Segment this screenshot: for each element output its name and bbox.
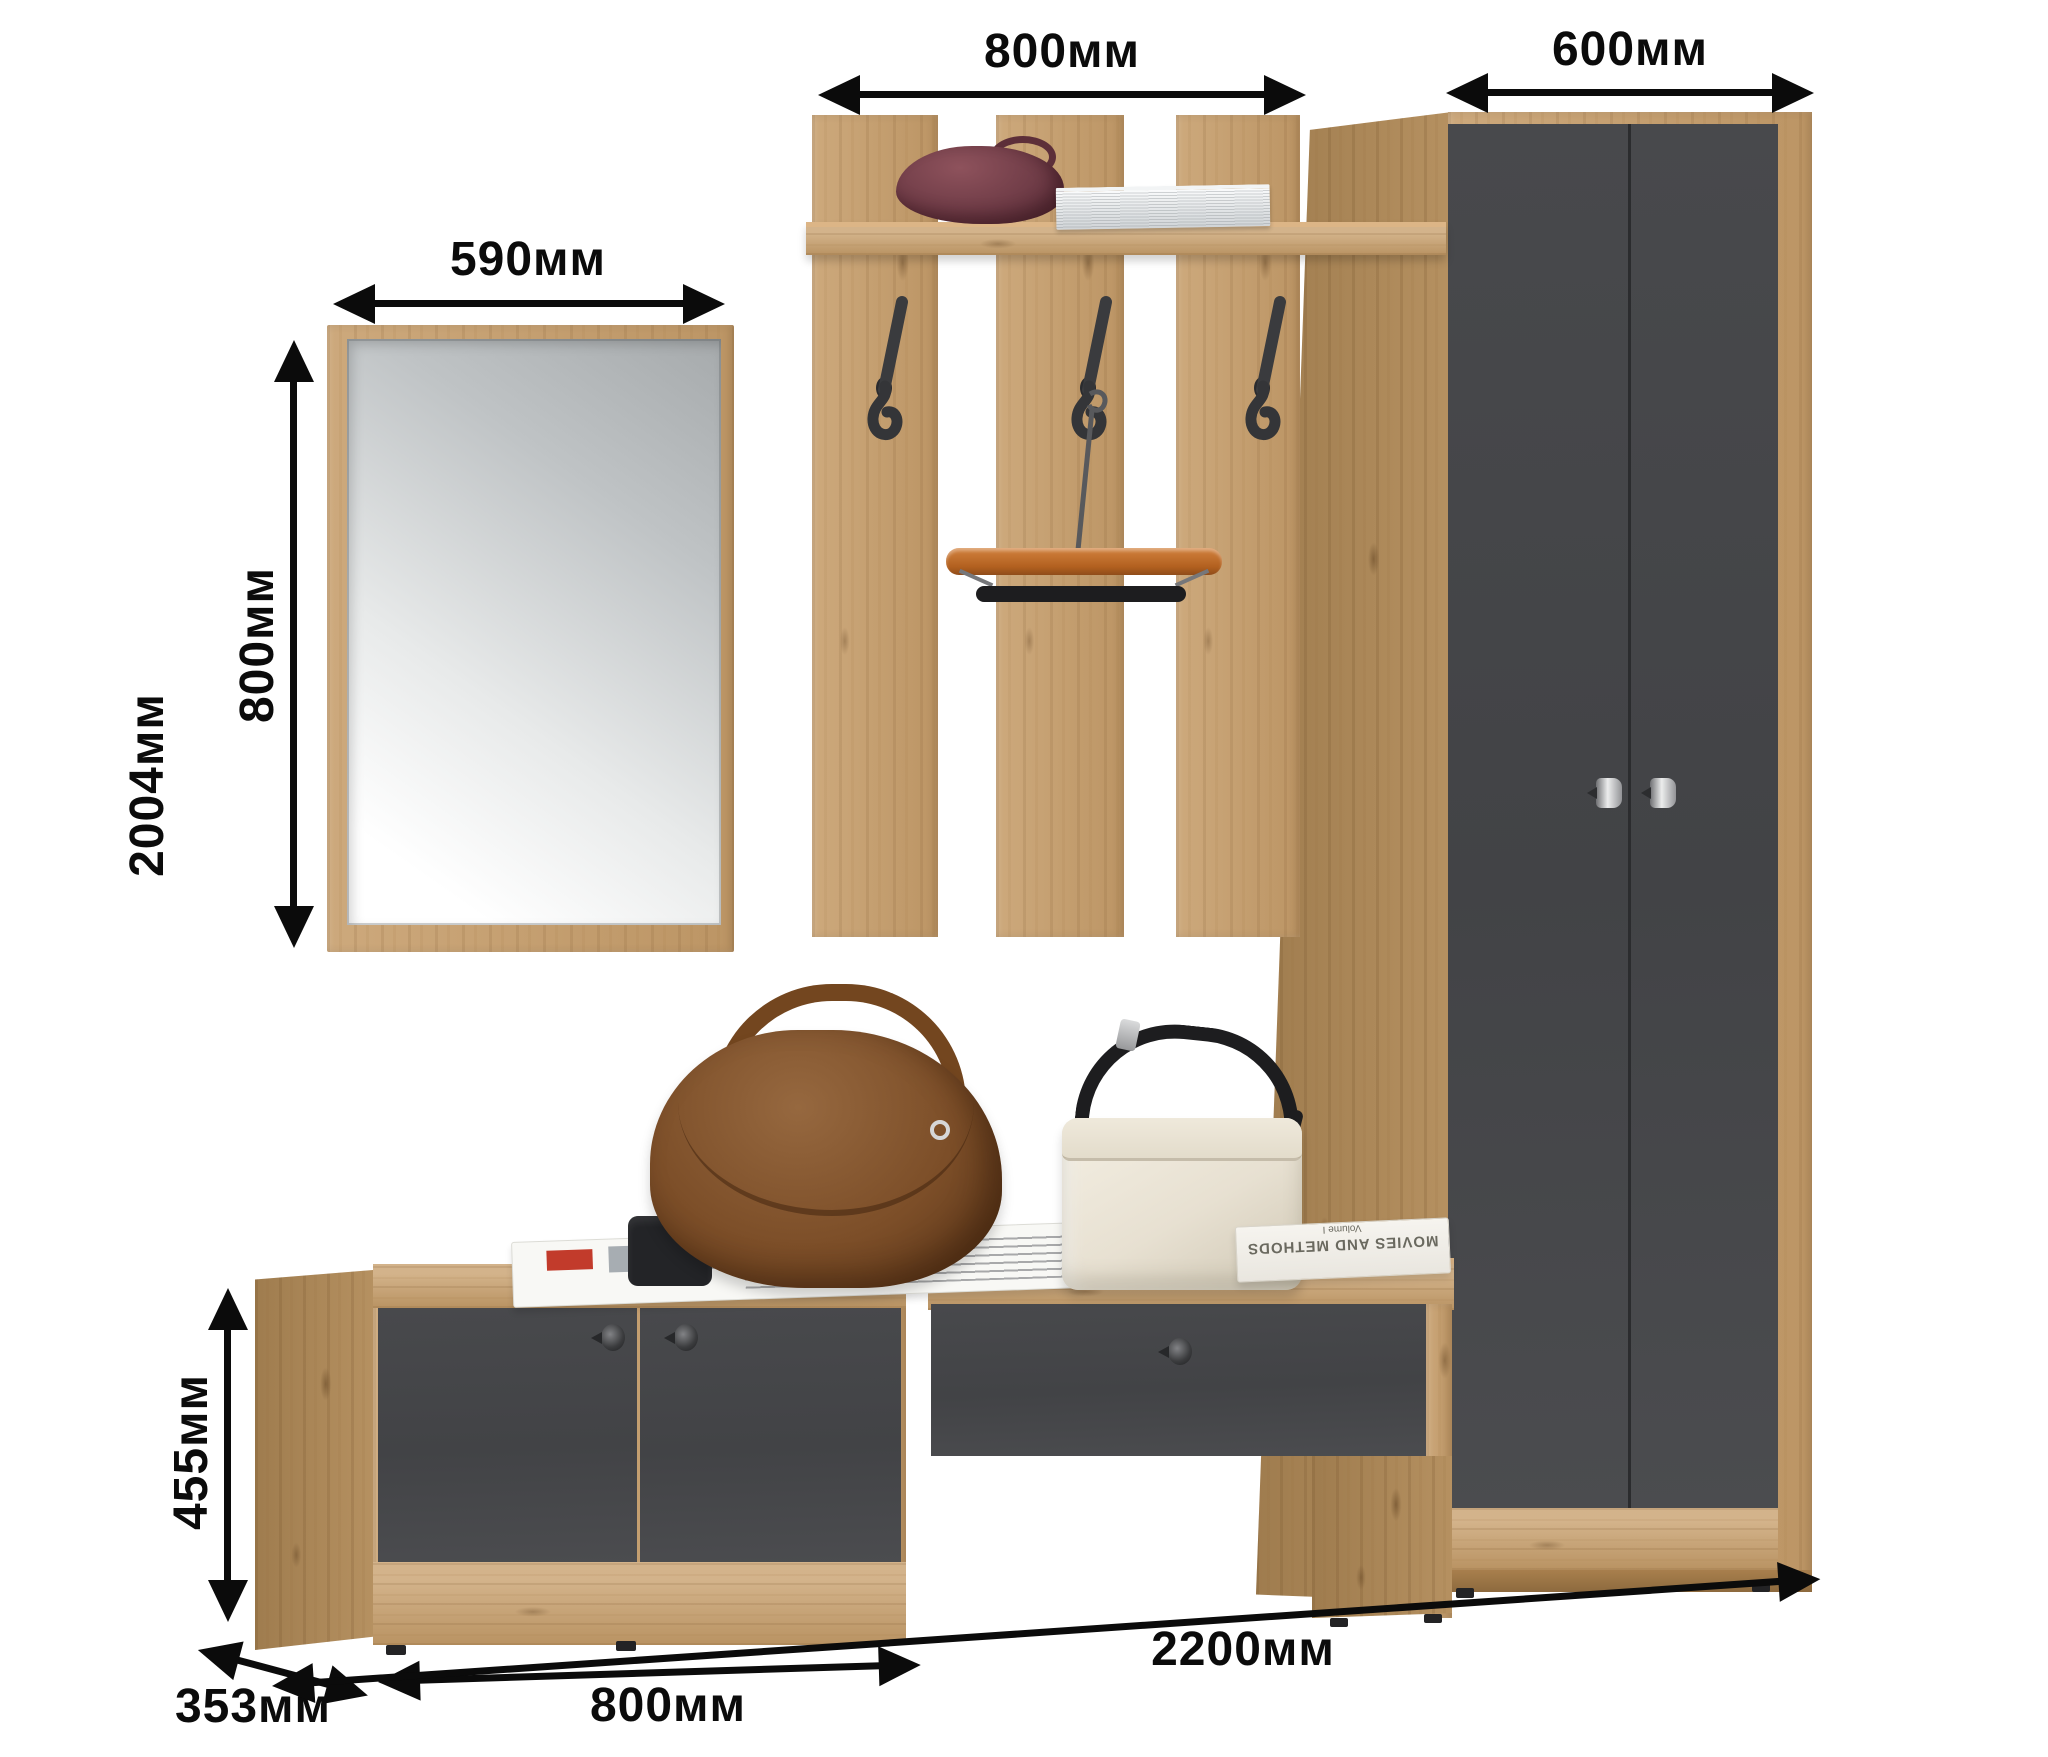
bench-book: MOVIES AND METHODS Volume I	[1235, 1217, 1451, 1282]
shoe-cabinet-knob-left	[601, 1324, 625, 1351]
shoe-cabinet-side	[255, 1270, 373, 1650]
hanger-wood-bar	[946, 548, 1222, 575]
shoe-cabinet-front	[373, 1264, 906, 1645]
dim-label-total-width: 2200мм	[1151, 1626, 1335, 1674]
coat-hook-1	[862, 288, 932, 458]
wardrobe-body	[1448, 112, 1812, 1592]
shelf-book	[1056, 184, 1271, 230]
shoe-cabinet-foot-right	[616, 1641, 636, 1651]
cream-bag-flap	[1062, 1118, 1302, 1161]
bench-book-cover-text: MOVIES AND METHODS Volume I	[1236, 1218, 1449, 1264]
dim-label-total-height: 2004мм	[124, 693, 172, 877]
bench-support-panel	[1312, 1456, 1452, 1618]
dim-label-mirror-width: 590мм	[450, 236, 606, 284]
shoe-cabinet-knob-right	[674, 1324, 698, 1351]
dim-arrow-mirror-height	[290, 380, 297, 908]
dim-arrow-wardrobe-width	[1486, 89, 1774, 96]
dim-label-mirror-height: 800мм	[234, 567, 282, 723]
wardrobe-door-right	[1631, 124, 1778, 1508]
dim-label-panel-width: 800мм	[984, 28, 1140, 76]
hanger-trouser-bar	[976, 586, 1186, 602]
mirror-glass	[347, 339, 721, 925]
dim-label-cabinet-height: 455мм	[168, 1374, 216, 1530]
wardrobe-foot-left	[1456, 1588, 1474, 1598]
dim-arrow-mirror-width	[373, 300, 685, 307]
hallway-furniture-render: MOVIES AND METHODS Volume I 590мм 800мм …	[0, 0, 2048, 1757]
dim-arrow-panel-width	[858, 91, 1266, 98]
bench-foot-right	[1424, 1614, 1442, 1623]
brown-bag-ring	[930, 1120, 950, 1140]
wardrobe-knob-left	[1596, 778, 1622, 808]
mirror-frame	[327, 325, 734, 952]
shoe-cabinet-foot-left	[386, 1645, 406, 1655]
wardrobe-plinth	[1448, 1508, 1778, 1570]
coat-hook-3	[1240, 288, 1310, 458]
dim-label-cabinet-width: 800мм	[590, 1682, 746, 1730]
shoe-cabinet-door-left	[378, 1308, 637, 1562]
dim-label-wardrobe-width: 600мм	[1552, 26, 1708, 74]
wardrobe-door-left	[1448, 124, 1631, 1508]
bench-drawer-knob	[1168, 1338, 1192, 1365]
pouch-bag	[896, 146, 1064, 224]
shoe-cabinet-plinth	[373, 1562, 906, 1645]
dim-arrow-cabinet-height	[224, 1328, 231, 1582]
bench-drawer-front	[931, 1304, 1427, 1456]
wardrobe-knob-right	[1650, 778, 1676, 808]
newspaper-masthead	[546, 1249, 593, 1271]
